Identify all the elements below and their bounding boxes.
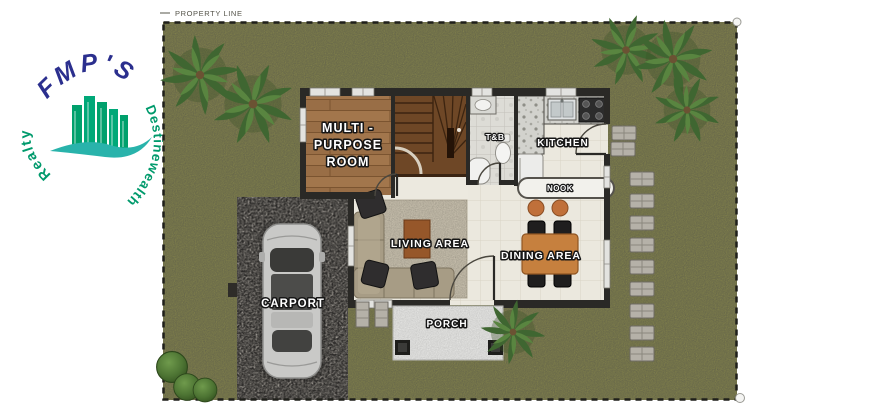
label-nook: NOOK — [547, 184, 573, 193]
kitchen-sink — [548, 99, 576, 120]
paver — [630, 304, 654, 318]
stove — [579, 98, 606, 122]
paver — [612, 126, 636, 140]
car-rear-window — [272, 330, 312, 352]
boundary-pin — [733, 18, 741, 26]
floor-plan-canvas: FMP'S Destinewealth Realty — [0, 0, 870, 420]
paver — [630, 194, 654, 208]
label-dining: DINING AREA — [501, 250, 581, 262]
label-multi-purpose-1: MULTI - — [322, 121, 374, 135]
label-porch: PORCH — [426, 319, 467, 330]
logo-text-top: FMP'S — [31, 48, 141, 104]
staircase — [395, 93, 466, 177]
paver — [630, 326, 654, 340]
bathroom-sink — [475, 100, 491, 111]
paver — [611, 142, 635, 156]
paver — [630, 172, 654, 186]
logo-text-left: Realty — [18, 129, 54, 184]
logo-text-right: Destinewealth — [124, 103, 166, 210]
porch-area: PORCH — [393, 306, 503, 360]
carport-post — [228, 283, 237, 297]
paver — [630, 238, 654, 252]
paver — [630, 282, 654, 296]
label-multi-purpose-3: ROOM — [327, 155, 370, 169]
paver — [630, 216, 654, 230]
paver — [356, 302, 369, 327]
shrub — [193, 378, 217, 402]
paver — [375, 302, 388, 327]
carport-area: CARPORT — [228, 197, 348, 400]
watermark-logo: FMP'S Destinewealth Realty — [18, 48, 166, 215]
bar-stool — [528, 200, 544, 216]
paver — [630, 260, 654, 274]
label-multi-purpose-2: PURPOSE — [314, 138, 382, 152]
floor-plan-scene: FMP'S Destinewealth Realty — [0, 0, 870, 420]
armchair — [360, 259, 389, 288]
property-line-label: PROPERTY LINE — [175, 9, 243, 18]
label-carport: CARPORT — [261, 298, 325, 310]
paver — [630, 347, 654, 361]
label-living: LIVING AREA — [391, 238, 469, 250]
bar-stool — [552, 200, 568, 216]
car-windshield — [270, 248, 314, 272]
label-toilet-bath: T&B — [486, 132, 505, 142]
boundary-pin — [736, 394, 745, 403]
armchair — [410, 261, 439, 290]
label-kitchen: KITCHEN — [537, 138, 588, 149]
